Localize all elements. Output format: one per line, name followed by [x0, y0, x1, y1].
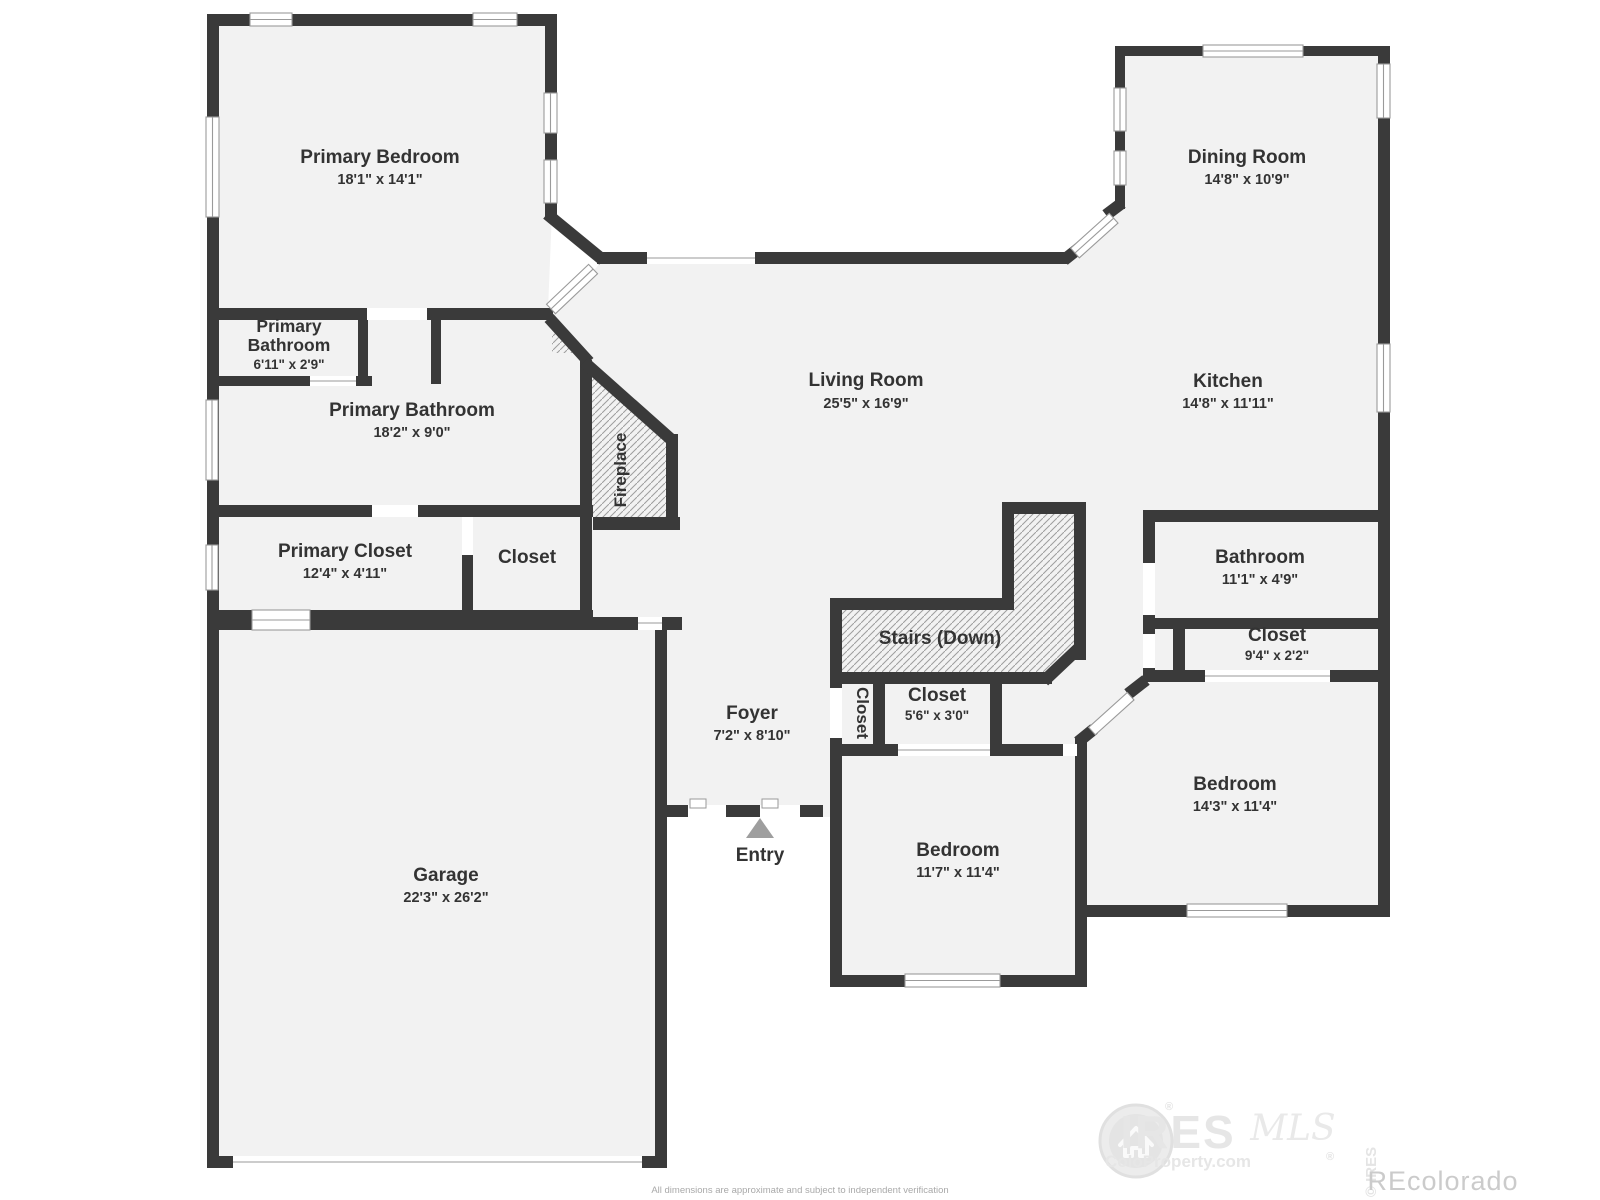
- watermarks: ® IRES MLS ColoProperty.com ® © IRES REc…: [1100, 1101, 1519, 1197]
- room-dims-primary-bathroom-small: 6'11" x 2'9": [253, 357, 324, 372]
- wall: [1074, 514, 1086, 660]
- window: [252, 610, 310, 630]
- wall: [830, 598, 1014, 610]
- room-label-kitchen: Kitchen: [1193, 371, 1263, 392]
- wall: [655, 617, 667, 1168]
- wall: [1002, 502, 1086, 514]
- door-opening: [830, 688, 842, 738]
- floor-plan: Primary Bedroom 18'1" x 14'1" Dining Roo…: [0, 0, 1600, 1200]
- window: [206, 117, 219, 217]
- door-leaf: [690, 799, 706, 808]
- wall: [593, 617, 682, 630]
- room-label-primary-closet: Primary Closet: [278, 541, 413, 562]
- room-dims-bedroom-closet: 5'6" x 3'0": [905, 708, 969, 723]
- wall: [593, 517, 680, 530]
- entry-arrow-icon: [746, 818, 774, 838]
- window: [905, 974, 1000, 987]
- room-label-hall-closet: Closet: [498, 547, 557, 568]
- door-opening: [1063, 744, 1077, 756]
- window: [1203, 45, 1303, 57]
- room-dims-dining-room: 14'8" x 10'9": [1204, 172, 1289, 188]
- wall: [358, 318, 368, 384]
- room-dims-primary-bedroom: 18'1" x 14'1": [337, 172, 422, 188]
- door-opening: [1143, 634, 1155, 668]
- window: [1377, 344, 1390, 412]
- floor-plan-page: Primary Bedroom 18'1" x 14'1" Dining Roo…: [0, 0, 1600, 1200]
- room-label-stairs: Stairs (Down): [879, 628, 1001, 649]
- registered-mark: ®: [1326, 1151, 1334, 1163]
- window: [206, 400, 218, 480]
- room-label-bedroom-right: Bedroom: [1193, 774, 1276, 795]
- room-label-bedroom-closet: Closet: [908, 685, 967, 706]
- room-dims-bedroom-right: 14'3" x 11'4": [1193, 799, 1277, 815]
- wall: [830, 672, 1052, 684]
- room-label-foyer-closet: Closet: [853, 687, 872, 739]
- room-label-bathroom: Bathroom: [1215, 547, 1305, 568]
- door-opening: [372, 505, 418, 517]
- ires-watermark-text: IRES: [1120, 1106, 1235, 1158]
- window: [1114, 151, 1126, 185]
- window: [473, 13, 517, 26]
- room-label-living-room: Living Room: [808, 370, 923, 391]
- window: [544, 160, 557, 203]
- room-label-primary-bedroom: Primary Bedroom: [300, 147, 459, 168]
- window: [544, 93, 557, 133]
- room-label-primary-bathroom-small-1: Primary: [256, 316, 321, 336]
- room-label-primary-bathroom-small-2: Bathroom: [248, 335, 331, 355]
- wall: [580, 360, 592, 618]
- door-opening: [1143, 563, 1155, 615]
- room-dims-foyer: 7'2" x 8'10": [713, 728, 790, 744]
- room-dims-living-room: 25'5" x 16'9": [823, 396, 908, 412]
- room-label-linen-closet: Closet: [1248, 625, 1307, 646]
- room-dims-primary-bathroom: 18'2" x 9'0": [373, 425, 450, 441]
- wall: [431, 318, 441, 384]
- room-label-fireplace: Fireplace: [611, 433, 630, 508]
- window: [1377, 64, 1390, 118]
- room-label-garage: Garage: [413, 865, 478, 886]
- room-label-bedroom-center: Bedroom: [916, 840, 999, 861]
- wall: [1075, 738, 1087, 987]
- disclaimer-text: All dimensions are approximate and subje…: [651, 1185, 948, 1196]
- wall: [1378, 46, 1390, 917]
- room-dims-bedroom-center: 11'7" x 11'4": [916, 865, 1000, 881]
- room-label-foyer: Foyer: [726, 703, 778, 724]
- door-leaf: [762, 799, 778, 808]
- room-dims-primary-closet: 12'4" x 4'11": [303, 566, 387, 582]
- room-label-primary-bathroom: Primary Bathroom: [329, 400, 495, 421]
- window: [1114, 88, 1126, 131]
- wall: [1002, 502, 1014, 610]
- coloproperty-watermark-text: ColoProperty.com: [1105, 1152, 1251, 1171]
- room-dims-bathroom: 11'1" x 4'9": [1222, 572, 1298, 588]
- room-label-dining-room: Dining Room: [1188, 147, 1306, 168]
- mls-watermark-text: MLS: [1249, 1108, 1335, 1149]
- window: [206, 545, 218, 590]
- door-opening: [367, 308, 427, 320]
- window: [250, 13, 292, 26]
- wall: [830, 598, 842, 987]
- room-dims-linen-closet: 9'4" x 2'2": [1245, 648, 1309, 663]
- wall: [666, 434, 678, 530]
- room-label-entry: Entry: [736, 845, 785, 866]
- window: [1187, 904, 1287, 917]
- room-dims-garage: 22'3" x 26'2": [403, 890, 488, 906]
- wall: [1143, 510, 1390, 522]
- room-dims-kitchen: 14'8" x 11'11": [1182, 396, 1274, 412]
- recolorado-watermark-text: REcolorado: [1367, 1166, 1518, 1196]
- door-opening: [462, 517, 473, 555]
